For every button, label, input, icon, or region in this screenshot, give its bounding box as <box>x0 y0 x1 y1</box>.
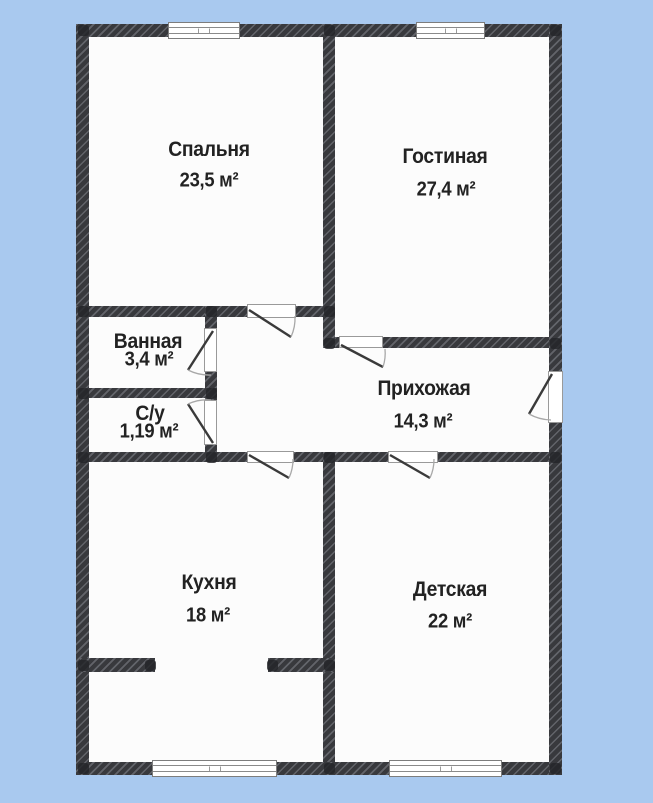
room-name-kitchen: Кухня <box>181 571 236 595</box>
floor-plan: Спальня 23,5 м² Гостиная 27,4 м² Ванная … <box>0 0 653 803</box>
wall-joint <box>78 388 89 399</box>
door-frame-kids <box>388 451 438 463</box>
wall-joint <box>206 452 217 463</box>
room-label-kitchen: Кухня <box>181 571 236 595</box>
door-frame-kitchen <box>247 451 294 463</box>
room-name-kids: Детская <box>413 578 487 602</box>
wall-joint <box>78 660 89 671</box>
door-frame-bedroom <box>247 304 296 318</box>
wall-joint <box>324 25 335 36</box>
wall-bath-wc <box>76 388 217 398</box>
room-name-bedroom: Спальня <box>168 138 250 162</box>
wall-joint <box>324 452 335 463</box>
door-frame-wc <box>204 400 217 445</box>
wall-exterior-top <box>76 24 562 37</box>
room-label-hallway: Прихожая <box>377 377 470 401</box>
window-kids <box>389 760 502 777</box>
window-bedroom <box>168 22 240 39</box>
wall-joint <box>78 25 89 36</box>
wall-hall-bottom-mid <box>294 452 389 462</box>
room-label-bedroom: Спальня <box>168 138 250 162</box>
wall-joint <box>324 660 335 671</box>
room-area-kids: 22 м² <box>428 611 472 634</box>
window-tick <box>440 766 452 771</box>
room-label-kids: Детская <box>413 578 487 602</box>
wall-joint <box>267 660 278 671</box>
window-tick <box>198 28 210 33</box>
wall-joint <box>550 452 561 463</box>
wall-joint <box>206 388 217 399</box>
room-area-bedroom: 23,5 м² <box>180 170 239 193</box>
wall-joint <box>324 338 335 349</box>
room-name-living: Гостиная <box>402 145 487 169</box>
wall-hall-kitchen <box>76 452 248 462</box>
room-area-wc: 1,19 м² <box>120 421 179 444</box>
wall-joint <box>550 25 561 36</box>
wall-kitchen-stub-left <box>80 658 155 672</box>
door-frame-living <box>339 336 383 348</box>
room-name-hallway: Прихожая <box>377 377 470 401</box>
wall-joint <box>324 763 335 774</box>
wall-joint <box>324 306 335 317</box>
wall-joint <box>206 306 217 317</box>
wall-bedroom-living <box>323 24 335 348</box>
wall-joint <box>78 306 89 317</box>
wall-joint <box>550 763 561 774</box>
wall-joint <box>78 763 89 774</box>
window-kitchen <box>152 760 277 777</box>
room-area-living: 27,4 м² <box>417 179 476 202</box>
room-area-kitchen: 18 м² <box>186 605 230 628</box>
window-living <box>416 22 485 39</box>
room-area-hallway: 14,3 м² <box>394 411 453 434</box>
wall-bedroom-hall-right <box>296 306 323 317</box>
wall-living-hall-right <box>382 337 549 348</box>
room-area-bathroom: 3,4 м² <box>125 349 174 372</box>
wall-joint <box>145 660 156 671</box>
wall-hall-kids <box>438 452 549 462</box>
wall-joint <box>550 338 561 349</box>
wall-kitchen-kids <box>323 452 335 762</box>
room-label-living: Гостиная <box>402 145 487 169</box>
wall-joint <box>78 452 89 463</box>
door-frame-entrance <box>548 371 563 423</box>
window-tick <box>209 766 221 771</box>
door-frame-bathroom <box>204 328 217 372</box>
wall-bedroom-hall-left <box>76 306 247 317</box>
window-tick <box>445 28 457 33</box>
